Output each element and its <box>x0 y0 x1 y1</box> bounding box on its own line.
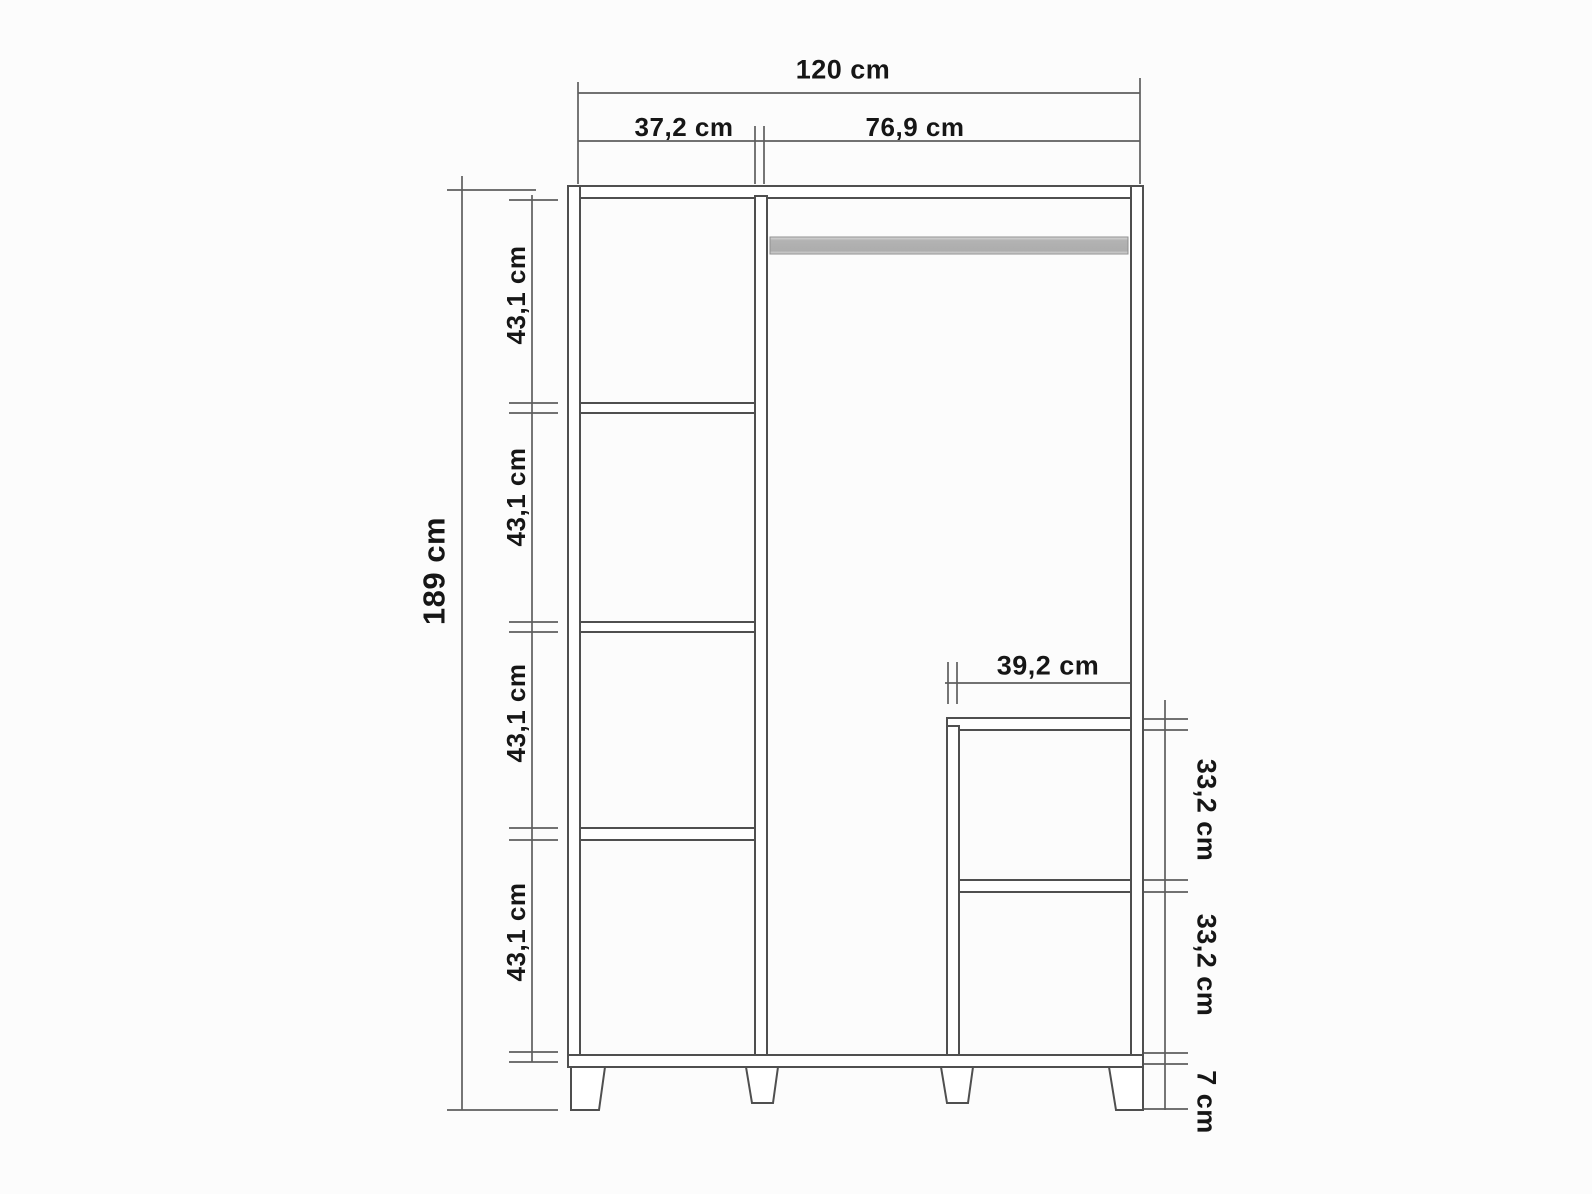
inner-unit-wall <box>947 726 959 1055</box>
dim-label-inner-unit-width: 39,2 cm <box>997 653 1100 680</box>
drawing-linework <box>0 0 1592 1194</box>
shelf-1 <box>580 403 755 413</box>
inner-unit-top <box>947 718 1131 730</box>
dim-label-shelf-gap-1: 43,1 cm <box>503 246 529 345</box>
dimension-lines <box>447 78 1188 1110</box>
shelf-3 <box>580 828 755 840</box>
bottom-board <box>568 1055 1143 1067</box>
foot-left <box>571 1067 605 1110</box>
shelf-2 <box>580 622 755 632</box>
dim-label-right-section-width: 76,9 cm <box>866 114 965 140</box>
foot-right <box>1109 1067 1143 1110</box>
dim-label-inner-gap-1: 33,2 cm <box>1193 759 1220 862</box>
dim-label-left-section-width: 37,2 cm <box>635 114 734 140</box>
center-divider <box>755 196 767 1057</box>
dim-label-total-width: 120 cm <box>796 57 891 84</box>
inner-unit-shelf <box>959 880 1131 892</box>
dim-label-total-height: 189 cm <box>419 517 450 625</box>
dim-label-shelf-gap-4: 43,1 cm <box>503 883 529 982</box>
dim-label-shelf-gap-3: 43,1 cm <box>503 664 529 763</box>
wardrobe-technical-drawing: 120 cm 37,2 cm 76,9 cm 189 cm 43,1 cm 43… <box>0 0 1592 1194</box>
top-board <box>568 186 1143 198</box>
foot-center-left <box>746 1067 778 1103</box>
hanging-rail <box>770 237 1128 254</box>
foot-center-right <box>941 1067 973 1103</box>
dim-label-feet-height: 7 cm <box>1193 1070 1220 1134</box>
wardrobe-body <box>568 186 1143 1110</box>
dim-label-inner-gap-2: 33,2 cm <box>1193 914 1220 1017</box>
dim-label-shelf-gap-2: 43,1 cm <box>503 448 529 547</box>
left-wall <box>568 186 580 1067</box>
right-wall <box>1131 186 1143 1067</box>
